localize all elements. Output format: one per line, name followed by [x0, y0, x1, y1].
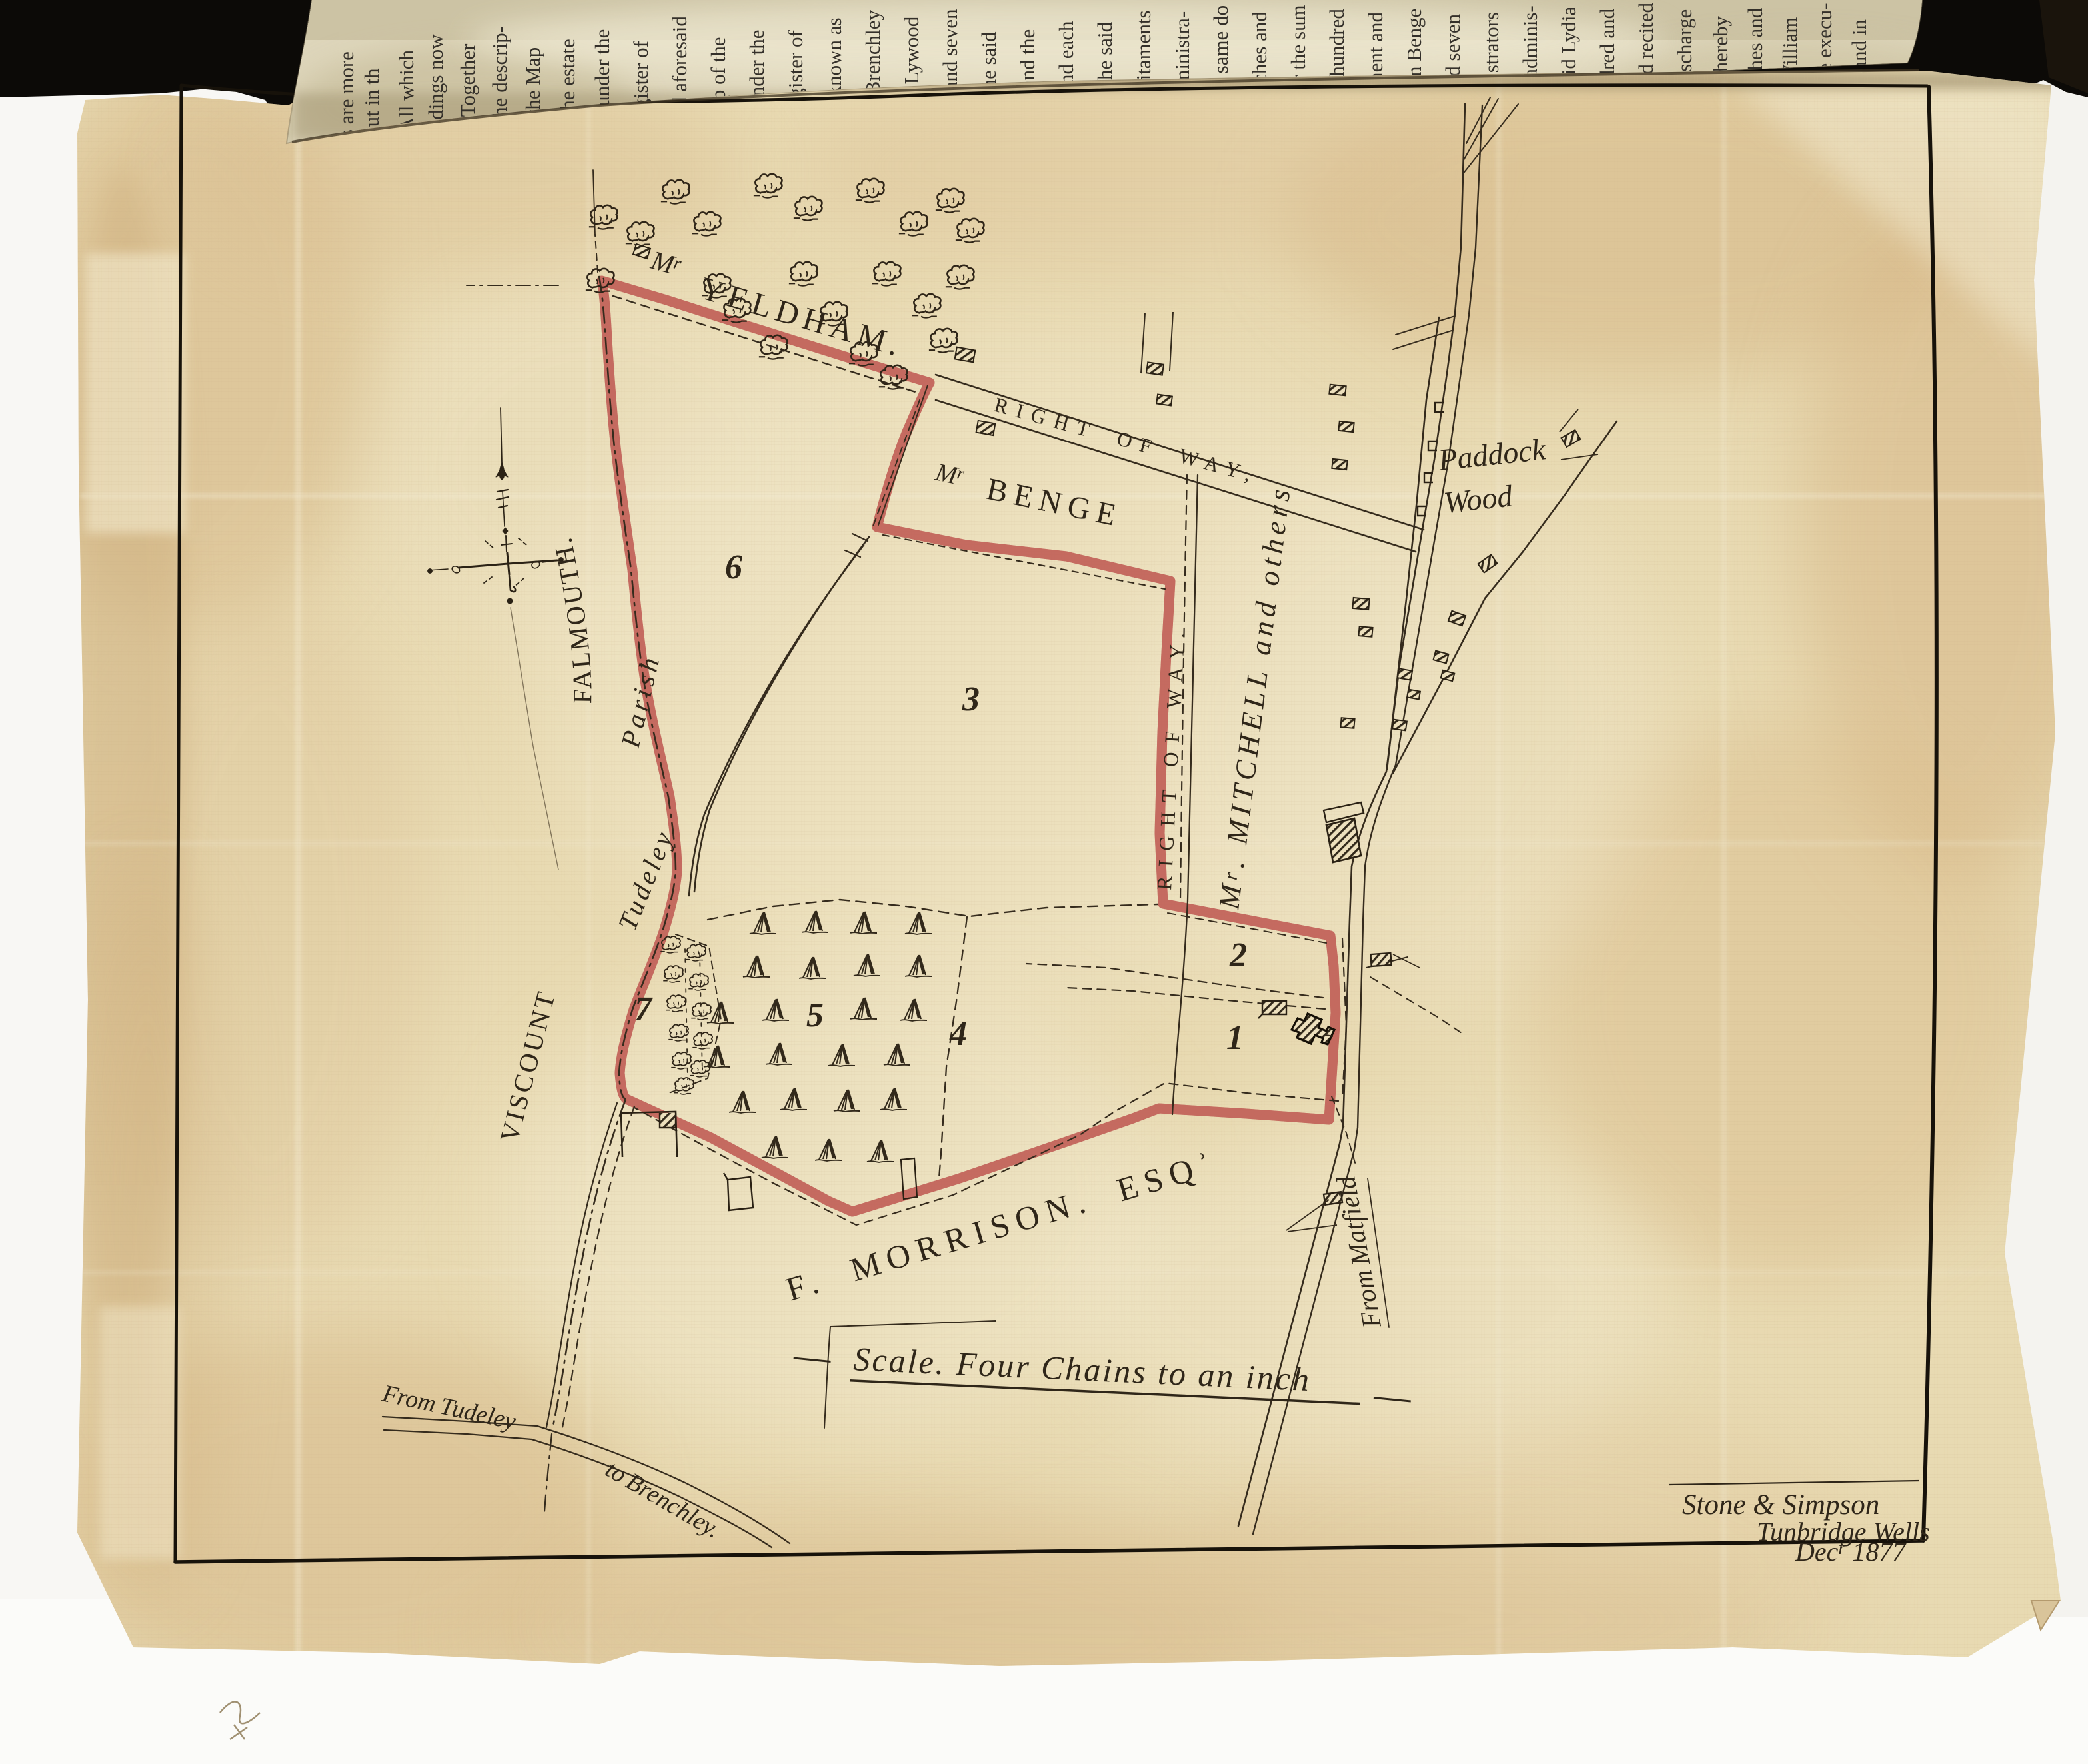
svg-text:Stone & Simpson: Stone & Simpson	[1682, 1489, 1879, 1521]
svg-text:2: 2	[1229, 936, 1247, 974]
svg-text:7: 7	[634, 990, 653, 1028]
svg-text:3: 3	[962, 680, 980, 718]
svg-text:Decr 1877: Decr 1877	[1795, 1537, 1907, 1567]
svg-text:4: 4	[949, 1015, 967, 1053]
svg-text:5: 5	[806, 996, 824, 1034]
svg-text:1: 1	[1226, 1019, 1244, 1057]
svg-text:Wood: Wood	[1442, 478, 1515, 520]
svg-text:6: 6	[725, 548, 742, 586]
